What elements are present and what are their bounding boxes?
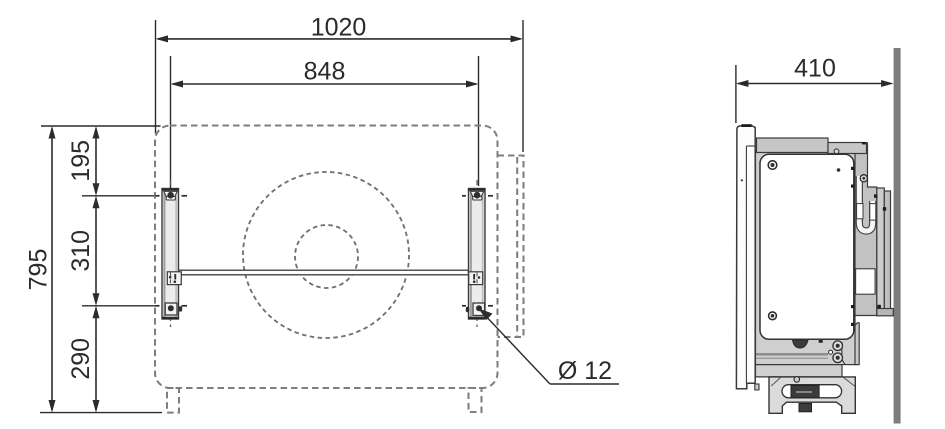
svg-text:848: 848 (304, 58, 346, 86)
svg-text:1020: 1020 (311, 14, 367, 42)
svg-text:795: 795 (25, 249, 53, 291)
svg-text:310: 310 (67, 230, 95, 272)
svg-text:195: 195 (67, 140, 95, 182)
svg-text:Ø 12: Ø 12 (558, 357, 612, 385)
svg-text:290: 290 (67, 338, 95, 380)
svg-text:410: 410 (794, 55, 836, 83)
